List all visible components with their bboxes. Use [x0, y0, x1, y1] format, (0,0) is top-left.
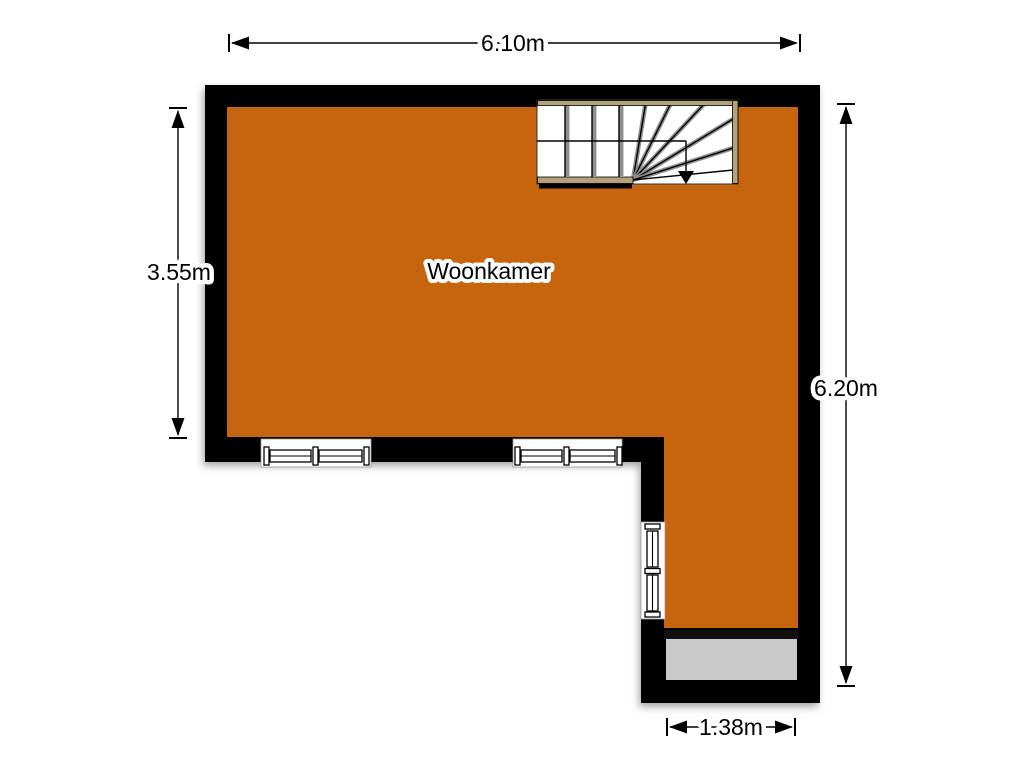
staircase-icon [537, 100, 738, 189]
porch-floor [666, 639, 797, 680]
dimension-left: 3.55m [147, 108, 211, 438]
dimension-top: 6.10m [229, 30, 800, 56]
floor-plan-canvas: 6.10m 3.55m 6.20m 1.38m [0, 0, 1024, 768]
dimension-top-label: 6.10m [481, 30, 545, 56]
window-bottom-right-icon [513, 439, 622, 467]
threshold-step [643, 630, 798, 639]
dimension-right-label: 6.20m [814, 375, 878, 401]
living-room-floor [227, 107, 798, 628]
window-bottom-left-icon [261, 439, 371, 467]
floor-plan-drawing: 6.10m 3.55m 6.20m 1.38m [0, 0, 1024, 768]
room-label: Woonkamer [427, 258, 551, 284]
dimension-bottom: 1.38m [667, 714, 795, 740]
dimension-left-label: 3.55m [147, 259, 211, 285]
dimension-right: 6.20m [814, 104, 878, 686]
dimension-bottom-label: 1.38m [699, 714, 763, 740]
window-side-icon [641, 522, 665, 619]
